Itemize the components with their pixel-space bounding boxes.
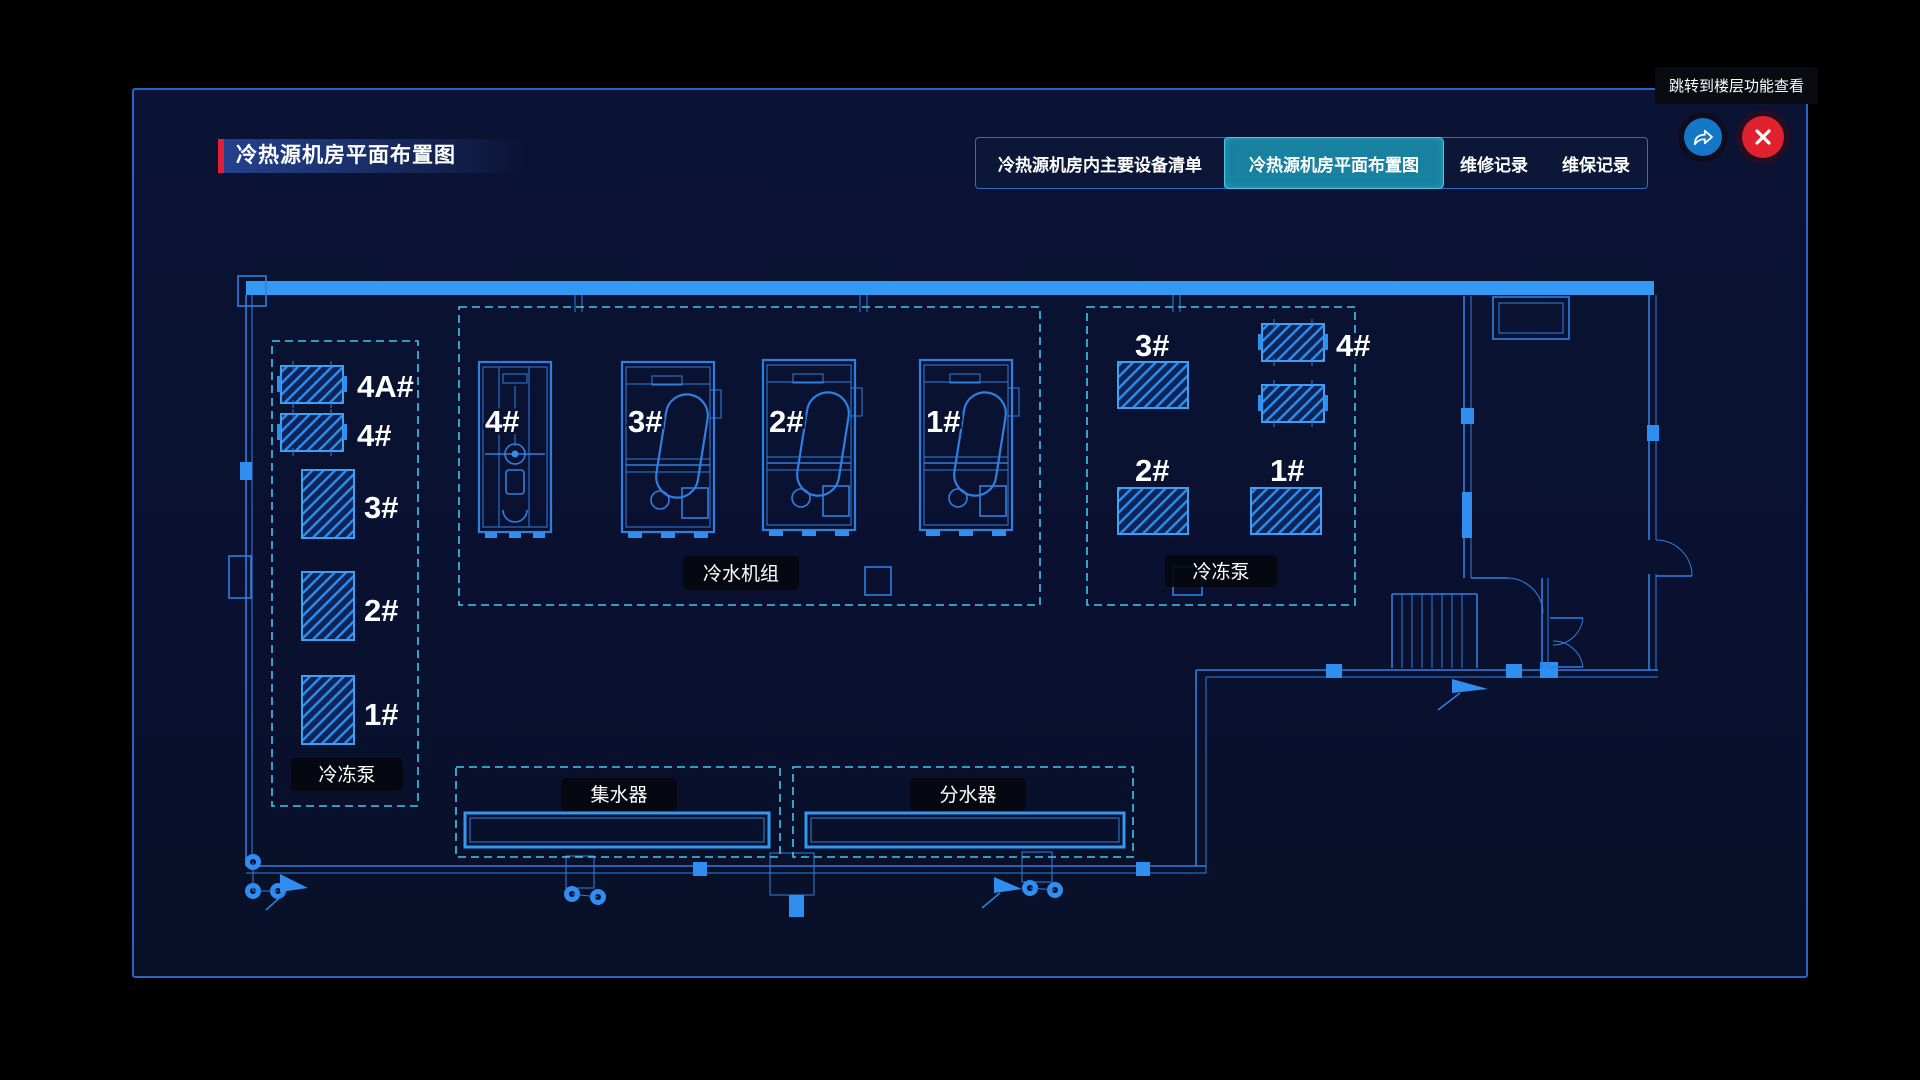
chiller-label: 4# [485, 404, 519, 439]
pump-label: 4# [1336, 328, 1370, 363]
collector-group: 集水器 [456, 767, 780, 857]
pump-label: 3# [364, 490, 398, 525]
group-label: 分水器 [939, 784, 996, 806]
pump-label: 2# [1135, 453, 1169, 488]
close-x-icon [1754, 128, 1772, 146]
pump-label: 1# [364, 697, 398, 732]
tab-maintenance-records[interactable]: 维保记录 [1545, 138, 1647, 188]
pump-label: 3# [1135, 328, 1169, 363]
share-arrow-icon [1692, 128, 1714, 146]
group-label: 集水器 [590, 784, 647, 806]
group-label: 冷冻泵 [318, 764, 375, 786]
page-title: 冷热源机房平面布置图 [224, 139, 526, 173]
equipment-box [1493, 297, 1569, 339]
chiller-unit [622, 362, 721, 538]
pump-unit [302, 676, 354, 744]
pump-unit [1118, 362, 1188, 408]
tab-bar: 冷热源机房内主要设备清单 冷热源机房平面布置图 维修记录 维保记录 [975, 137, 1648, 189]
jump-to-floor-button[interactable] [1684, 118, 1722, 156]
pump-label: 2# [364, 593, 398, 628]
tab-floor-plan[interactable]: 冷热源机房平面布置图 [1224, 137, 1444, 189]
distributor-group: 分水器 [793, 767, 1133, 857]
pump-unit [1118, 488, 1188, 534]
top-wall [246, 281, 1654, 295]
chiller-label: 1# [926, 404, 960, 439]
doors [1471, 540, 1692, 668]
pump-label: 4A# [357, 369, 414, 404]
pump-unit [277, 409, 347, 456]
pump-unit [1258, 380, 1328, 427]
pump-unit [277, 361, 347, 408]
left-pump-group: 4A# 4# 3# 2# 1# 冷冻泵 [272, 341, 418, 806]
tab-equipment-list[interactable]: 冷热源机房内主要设备清单 [976, 138, 1225, 188]
chiller-unit [920, 360, 1019, 536]
chiller-unit [763, 360, 862, 536]
chiller-label: 2# [769, 404, 803, 439]
stairs [1392, 594, 1488, 710]
stairs-direction-arrow [1452, 679, 1488, 693]
pump-label: 4# [357, 418, 391, 453]
screen: { "header": { "title": "冷热源机房平面布置图", "to… [0, 0, 1920, 1080]
pump-label: 1# [1270, 453, 1304, 488]
chiller-unit [479, 362, 551, 538]
pump-unit [1251, 488, 1321, 534]
chiller-group: 4# 3# 2# 1# 冷水机组 [459, 307, 1040, 605]
chiller-label: 3# [628, 404, 662, 439]
jump-tooltip: 跳转到楼层功能查看 [1655, 67, 1818, 104]
close-button[interactable] [1742, 116, 1784, 158]
pump-unit [302, 572, 354, 640]
group-label: 冷水机组 [703, 563, 779, 585]
pump-unit [302, 470, 354, 538]
tab-repair-records[interactable]: 维修记录 [1443, 138, 1545, 188]
right-pump-group: 3# 4# 2# 1# 冷冻泵 [1087, 307, 1370, 605]
pump-unit [1258, 319, 1328, 366]
floor-plan-svg: 4A# 4# 3# 2# 1# 冷冻泵 4# 3# 2# 1# 冷水机组 3# … [225, 270, 1705, 935]
group-label: 冷冻泵 [1192, 561, 1249, 583]
